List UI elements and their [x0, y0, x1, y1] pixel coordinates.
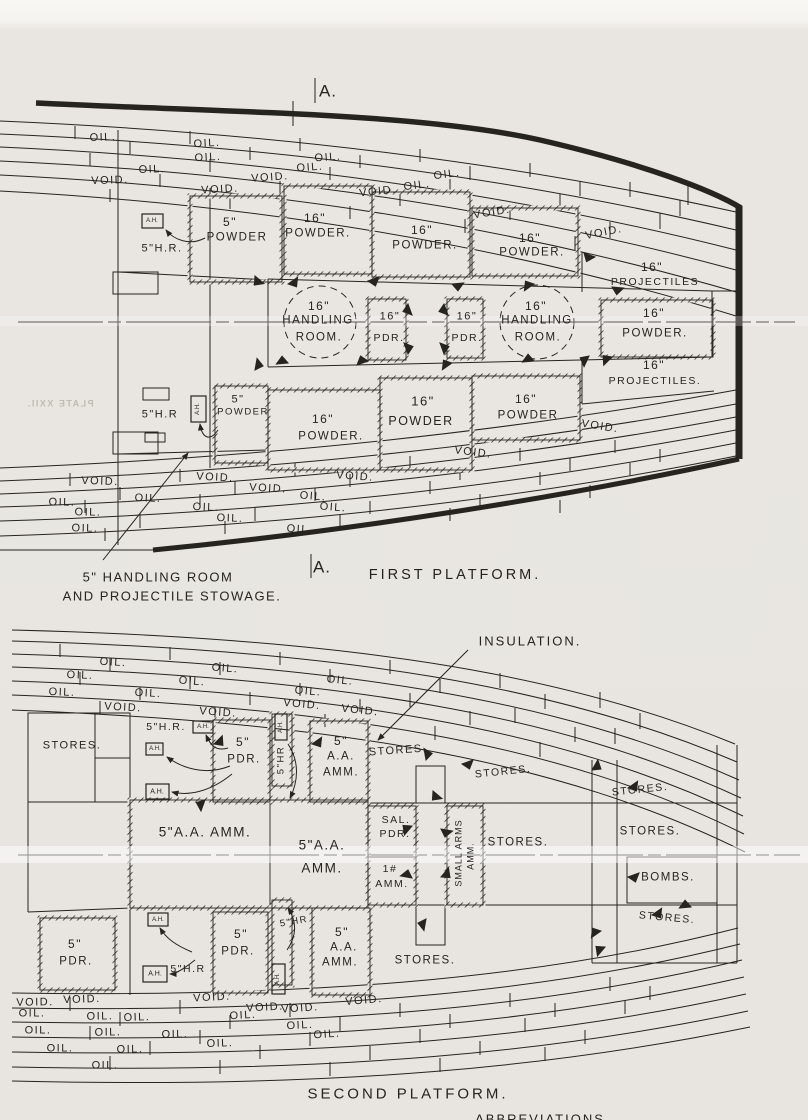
diagram-label: 16": [643, 359, 665, 371]
diagram-label: OIL.: [216, 513, 243, 525]
diagram-label: POWDER.: [499, 247, 564, 259]
diagram-label: A.A.: [330, 942, 358, 954]
scanned-deck-plan-page: A.OIL.OIL.OIL.OIL.OIL.OIL.OIL.OIL.VOID.V…: [0, 0, 808, 1120]
diagram-label: VOID.: [104, 702, 142, 715]
diagram-label: OIL.: [89, 132, 116, 144]
diagram-label: POWDER: [207, 232, 268, 244]
caption-second-platform: SECOND PLATFORM.: [307, 1087, 508, 1102]
diagram-label: OIL.: [162, 1029, 189, 1040]
diagram-label: A.H.: [150, 789, 164, 796]
diagram-label: AMM.: [322, 957, 358, 969]
bleedthrough-plate-number: PLATE XXII.: [26, 400, 93, 409]
diagram-label: 16": [519, 232, 541, 244]
diagram-label: OIL.: [313, 1029, 340, 1042]
caption-first-platform: FIRST PLATFORM.: [369, 568, 542, 583]
diagram-label: OIL.: [19, 1009, 46, 1020]
diagram-label: OIL.: [72, 523, 99, 534]
five-inch-handling-room: 5"H.R.: [141, 244, 182, 255]
diagram-label: OIL.: [193, 138, 220, 150]
diagram-label: OIL.: [294, 685, 322, 698]
diagram-label: OIL.: [206, 1038, 233, 1050]
diagram-label: 16": [304, 212, 326, 224]
diagram-label: A.H.: [278, 721, 284, 733]
note-line-1: 5" HANDLING ROOM: [83, 571, 234, 584]
diagram-label: OIL.: [178, 676, 205, 689]
diagram-label: PDR.: [451, 333, 482, 344]
diagram-label: ROOM.: [515, 332, 561, 344]
diagram-label: VOID.: [81, 476, 119, 488]
diagram-label: POWDER: [498, 410, 559, 422]
diagram-label: AMM.: [467, 842, 476, 870]
diagram-label: OIL.: [319, 502, 346, 515]
diagram-label: OIL.: [92, 1061, 119, 1072]
diagram-label: VOID.: [63, 994, 101, 1006]
diagram-label: 16": [515, 393, 537, 405]
diagram-label: 1#: [383, 864, 398, 875]
diagram-label: PROJECTILES.: [609, 376, 702, 387]
ammunition-hoist-box: A.H.: [195, 403, 201, 415]
diagram-label: POWDER.: [285, 228, 350, 240]
diagram-label: 16": [457, 312, 478, 323]
diagram-label: A.A.: [327, 751, 355, 763]
diagram-label: ROOM.: [296, 332, 342, 344]
section-marker-a-bottom: A.: [313, 559, 331, 576]
diagram-label: OIL.: [66, 670, 93, 682]
diagram-label: PDR.: [59, 956, 92, 968]
diagram-label: 16": [411, 224, 433, 236]
diagram-label: SAL.: [382, 815, 411, 826]
diagram-label: STORES.: [620, 826, 681, 838]
diagram-label: OIL.: [229, 1010, 256, 1022]
diagram-label: VOID.: [196, 472, 234, 485]
diagram-label: 16": [643, 307, 665, 319]
diagram-label: AMM.: [323, 767, 359, 779]
diagram-label: OIL.: [123, 1012, 150, 1024]
diagram-label: OIL.: [211, 663, 238, 676]
diagram-label: 16": [308, 300, 330, 312]
diagram-label: POWDER.: [622, 328, 687, 340]
diagram-label: OIL.: [134, 493, 161, 505]
diagram-label: 5"H.R: [142, 410, 178, 421]
diagram-label: 5": [68, 938, 82, 950]
diagram-label: 5": [231, 395, 244, 406]
diagram-label: STORES.: [488, 837, 549, 849]
diagram-label: A.H.: [197, 724, 209, 730]
diagram-label: 5"HR: [276, 746, 286, 774]
diagram-label: OIL.: [286, 1020, 313, 1032]
diagram-label: A.H.: [152, 917, 164, 923]
diagram-label: 5": [234, 928, 248, 940]
diagram-label: 5"H.R: [170, 964, 205, 975]
diagram-label: 16": [312, 413, 334, 425]
note-arrow: [103, 453, 188, 560]
diagram-label: SMALL ARMS: [455, 819, 464, 886]
diagram-label: HANDLING: [501, 315, 572, 327]
hull-shell-bottom: [153, 459, 739, 550]
diagram-label: OIL.: [95, 1027, 122, 1038]
diagram-label: POWDER: [388, 415, 453, 428]
diagram-label: A.H.: [149, 746, 161, 752]
diagram-label: OIL.: [75, 507, 102, 518]
diagram-label: OIL.: [134, 688, 161, 700]
diagram-label: OIL.: [138, 164, 165, 176]
diagram-label: 16": [380, 312, 401, 323]
diagram-label: 5"H.R.: [146, 722, 186, 733]
diagram-label: OIL.: [286, 524, 313, 536]
diagram-label: 5": [334, 735, 348, 747]
note-insulation: INSULATION.: [479, 635, 582, 648]
diagram-label: 5": [335, 926, 349, 938]
plate-joints: [60, 644, 640, 757]
caption-abbreviations-partial: ABBREVIATIONS: [475, 1113, 605, 1120]
diagram-label: VOID.: [193, 992, 231, 1005]
diagram-label: A.H.: [275, 973, 281, 985]
diagram-label: 5"A.A. AMM.: [159, 825, 252, 839]
diagram-label: PDR.: [379, 829, 410, 840]
diagram-label: OIL.: [296, 162, 323, 175]
diagram-label: AMM.: [301, 861, 342, 875]
diagram-label: OIL.: [117, 1044, 144, 1055]
ammunition-hoist-box: A.H.: [146, 218, 158, 224]
diagram-label: HANDLING: [282, 315, 353, 327]
trunk-column: [416, 766, 445, 945]
diagram-label: OIL.: [25, 1026, 52, 1037]
diagram-label: VOID.: [201, 184, 239, 197]
note-line-2: AND PROJECTILE STOWAGE.: [63, 590, 282, 603]
diagram-label: STORES.: [395, 955, 456, 967]
diagram-label: BOMBS.: [641, 872, 695, 884]
diagram-label: 16": [411, 395, 435, 408]
diagram-label: 16": [641, 261, 663, 273]
diagram-label: PDR.: [373, 333, 404, 344]
diagram-label: PDR.: [227, 754, 260, 766]
diagram-label: OIL.: [194, 152, 221, 164]
diagram-label: POWDER: [217, 407, 269, 417]
diagram-label: OIL.: [87, 1011, 114, 1022]
diagram-label: STORES.: [43, 741, 102, 752]
diagram-label: OIL.: [192, 502, 219, 514]
diagram-label: VOID.: [249, 483, 287, 496]
diagram-label: OIL.: [47, 1044, 74, 1055]
diagram-label: A.H.: [148, 971, 162, 978]
diagram-label: 16": [525, 300, 547, 312]
diagram-label: VOID.: [91, 175, 129, 187]
diagram-label: POWDER.: [298, 431, 363, 443]
deck-plan-linework: [0, 0, 808, 1120]
diagram-label: POWDER.: [392, 240, 457, 252]
diagram-label: OIL.: [48, 687, 75, 699]
diagram-label: 5"A.A.: [299, 838, 346, 852]
diagram-label: OIL.: [99, 657, 126, 669]
diagram-label: 5": [236, 736, 250, 748]
diagram-label: 5": [223, 216, 237, 228]
diagram-label: AMM.: [375, 879, 408, 890]
diagram-label: PROJECTILES: [611, 277, 699, 288]
diagram-label: PDR.: [221, 946, 254, 958]
section-marker-a-top: A.: [319, 83, 337, 100]
diagram-label: OIL.: [49, 497, 76, 508]
